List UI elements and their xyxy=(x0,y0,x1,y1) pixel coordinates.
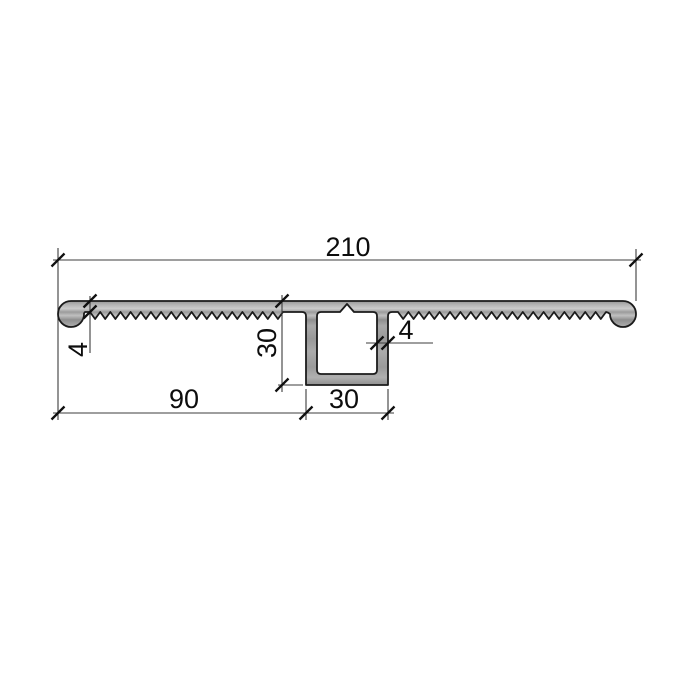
profile-cross-section xyxy=(58,301,636,385)
dim-label-left-offset: 90 xyxy=(169,384,199,414)
technical-drawing: 210 4 30 4 90 30 xyxy=(0,0,700,700)
dim-label-plate-thickness: 4 xyxy=(63,342,93,357)
dimension-labels: 210 4 30 4 90 30 xyxy=(63,232,414,414)
dim-label-total-width: 210 xyxy=(325,232,370,262)
dim-label-wall-thickness: 4 xyxy=(398,315,413,345)
drawing-canvas: 210 4 30 4 90 30 xyxy=(0,0,700,700)
dim-label-box-height: 30 xyxy=(252,328,282,358)
dim-label-box-width: 30 xyxy=(329,384,359,414)
